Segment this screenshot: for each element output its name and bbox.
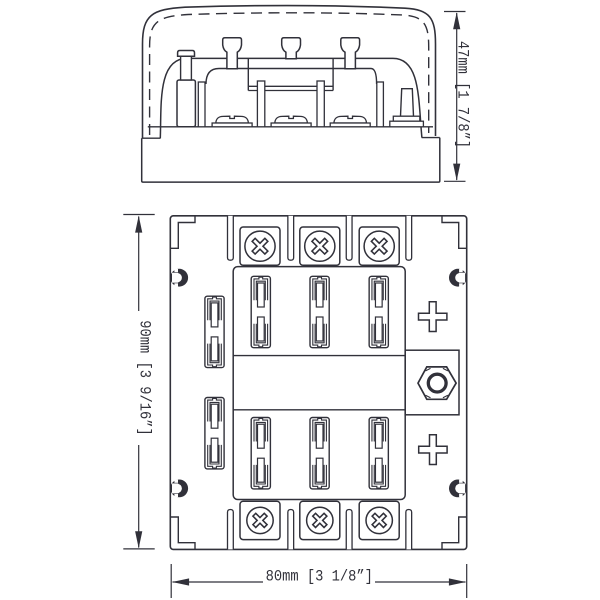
svg-text:90mm [3 9/16”]: 90mm [3 9/16”] [135,320,152,435]
svg-text:47mm [1 7/8”]: 47mm [1 7/8”] [453,41,470,148]
svg-text:80mm [3 1/8”]: 80mm [3 1/8”] [266,569,373,586]
